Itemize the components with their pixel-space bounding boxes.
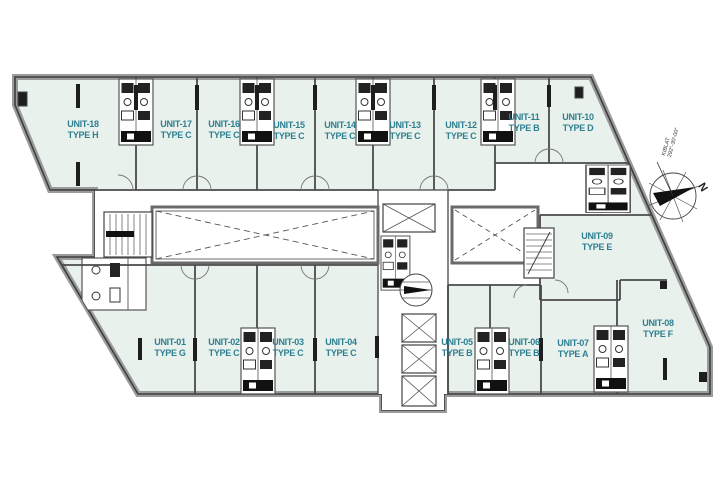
unit-label-13: UNIT-13TYPE C [373,120,437,142]
unit-label-04: UNIT-04TYPE C [309,337,373,359]
north-arrow [653,187,695,206]
unit-label-18: UNIT-18TYPE H [51,119,115,141]
unit-label-15: UNIT-15TYPE C [257,120,321,142]
unit-label-17: UNIT-17TYPE C [144,119,208,141]
unit-label-07: UNIT-07TYPE A [541,338,605,360]
floor-plan-canvas: N KIBLAT 292°-30'-00" UNIT-01TYPE G UNIT… [0,0,726,483]
stair-left [104,212,152,257]
unit-label-05: UNIT-05TYPE B [425,337,489,359]
stair-right [524,228,554,278]
north-label: N [695,181,709,194]
unit-label-09: UNIT-09TYPE E [565,231,629,253]
north-compass: N KIBLAT 292°-30'-00" [647,126,710,222]
void-left [152,207,378,263]
unit-label-11: UNIT-11TYPE B [492,112,556,134]
unit-label-08: UNIT-08TYPE F [626,318,690,340]
unit-label-02: UNIT-02TYPE C [192,337,256,359]
unit-label-12: UNIT-12TYPE C [429,120,493,142]
